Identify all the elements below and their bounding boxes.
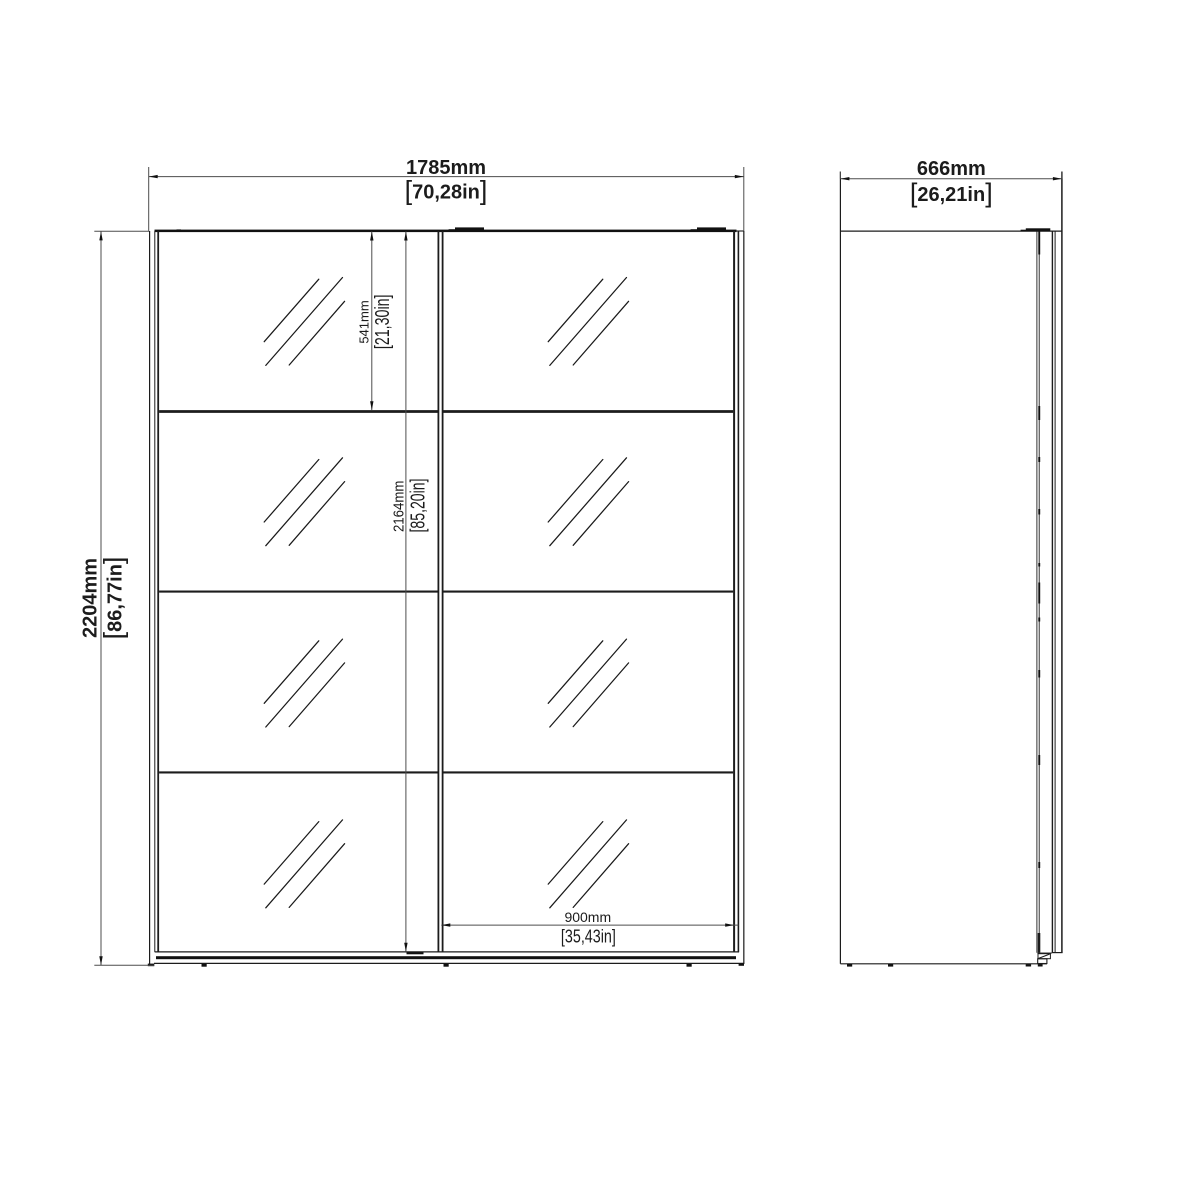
svg-text:541mm: 541mm bbox=[357, 300, 372, 343]
svg-text:666mm: 666mm bbox=[917, 158, 986, 180]
svg-text:2204mm: 2204mm bbox=[80, 558, 102, 638]
svg-text:[85,20in]: [85,20in] bbox=[407, 479, 429, 533]
svg-text:[35,43in]: [35,43in] bbox=[561, 926, 616, 946]
svg-text:900mm: 900mm bbox=[564, 909, 611, 925]
svg-text:2164mm: 2164mm bbox=[391, 481, 407, 533]
svg-text:[21,30in]: [21,30in] bbox=[371, 295, 394, 350]
svg-text:1785mm: 1785mm bbox=[406, 157, 486, 179]
